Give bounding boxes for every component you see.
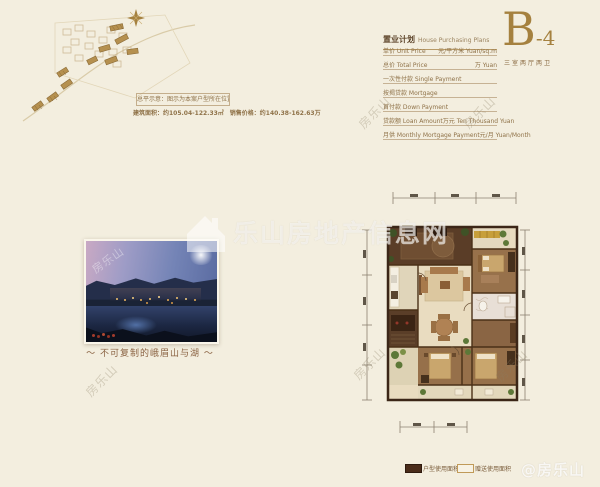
- site-plan-sketch: [15, 3, 225, 138]
- area-price-line: 建筑面积：约105.04-122.33㎡ 销售价格：约140.38-162.63…: [133, 108, 275, 117]
- plan-row-monthly-payment: 月供 Monthly Mortgage Payment 元/月 Yuan/Mon…: [383, 126, 497, 140]
- row-unit: 元/月 Yuan/Month: [480, 130, 531, 139]
- row-unit: 万 Yuan: [475, 60, 497, 69]
- plan-row-single-payment: 一次性付款 Single Payment: [383, 70, 497, 84]
- unit-letter: B: [502, 2, 536, 56]
- center-watermark-text: 乐山房地产信息网: [233, 214, 449, 250]
- row-label: 单价 Unit Price: [383, 46, 426, 55]
- room-master-bedroom: [472, 249, 517, 293]
- corner-watermark: @房乐山: [521, 459, 585, 480]
- center-watermark: 乐山房地产信息网: [183, 210, 449, 254]
- plan-row-unit-price: 单价 Unit Price 元/平方米 Yuan/sq.m: [383, 42, 497, 56]
- plan-row-total-price: 总价 Total Price 万 Yuan: [383, 56, 497, 70]
- diagonal-watermark: 房乐山: [82, 361, 122, 401]
- room-balcony-bottom: [418, 385, 517, 400]
- photo-caption: ～ 不可复制的峨眉山与湖 ～: [70, 346, 230, 359]
- row-label: 月供 Monthly Mortgage Payment: [383, 130, 480, 139]
- site-plan-note: 总平示意：图示为本案户型所在位置: [136, 93, 230, 106]
- flyer-page: 总平示意：图示为本案户型所在位置 建筑面积：约105.04-122.33㎡ 销售…: [0, 0, 600, 487]
- gold-buildings: [32, 24, 139, 112]
- room-balcony-top: [472, 229, 510, 249]
- purchase-plan-rows: 单价 Unit Price 元/平方米 Yuan/sq.m 总价 Total P…: [383, 42, 497, 140]
- unit-number: 4: [543, 26, 556, 50]
- compass-icon: [127, 9, 145, 27]
- plan-row-mortgage: 按揭贷款 Mortgage: [383, 84, 497, 98]
- legend-label-filled: 户型使用面积: [423, 464, 459, 473]
- room-garden-balcony: [388, 347, 418, 385]
- row-unit: 元/平方米 Yuan/sq.m: [438, 46, 497, 55]
- room-bedroom-left: [418, 347, 462, 385]
- row-label: 贷款额 Loan Amount: [383, 116, 443, 125]
- row-label: 按揭贷款 Mortgage: [383, 88, 438, 97]
- photo-village: [110, 288, 202, 300]
- room-entry: [388, 310, 418, 347]
- legend-swatch-outline: [457, 464, 474, 473]
- photo-window-lights: [116, 298, 118, 300]
- legend-label-outline: 赠送使用面积: [475, 464, 511, 473]
- unit-dash: -: [536, 26, 543, 50]
- room-kitchen: [388, 265, 418, 310]
- photo-flowers: [92, 334, 95, 337]
- room-corridor: [472, 320, 517, 347]
- unit-badge: B-4: [502, 4, 555, 54]
- room-bathroom: [472, 293, 517, 320]
- row-label: 一次性付款 Single Payment: [383, 74, 462, 83]
- unit-layout-type: 三室两厅两卫: [504, 58, 552, 67]
- row-label: 总价 Total Price: [383, 60, 427, 69]
- legend-swatch-filled: [405, 464, 422, 473]
- house-logo-icon: [183, 210, 229, 254]
